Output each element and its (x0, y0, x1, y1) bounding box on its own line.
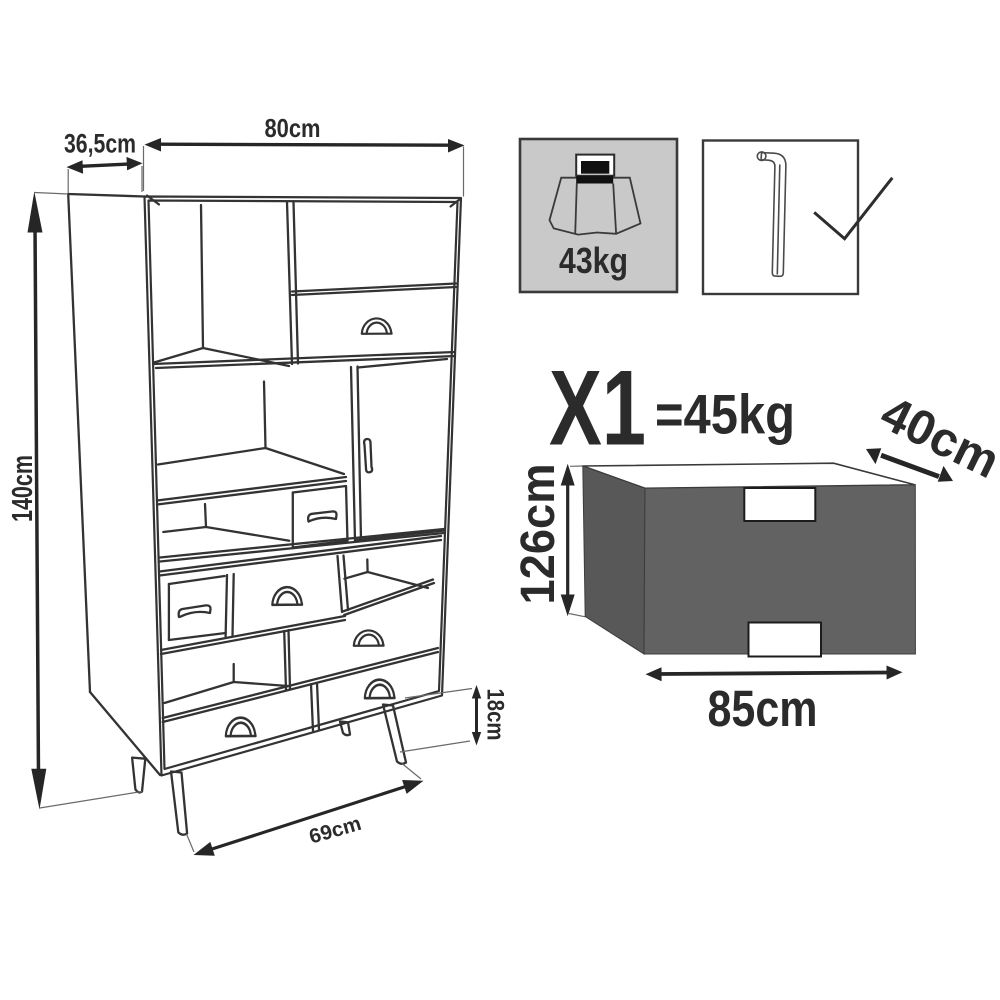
svg-text:126cm: 126cm (512, 464, 565, 605)
svg-text:85cm: 85cm (708, 680, 818, 737)
svg-text:43kg: 43kg (559, 240, 628, 281)
svg-text:80cm: 80cm (265, 113, 321, 143)
svg-text:=45kg: =45kg (655, 383, 795, 446)
svg-text:69cm: 69cm (307, 812, 364, 849)
svg-text:140cm: 140cm (7, 455, 39, 522)
svg-text:X1: X1 (549, 348, 646, 468)
svg-text:36,5cm: 36,5cm (64, 129, 136, 159)
svg-text:18cm: 18cm (482, 689, 509, 741)
